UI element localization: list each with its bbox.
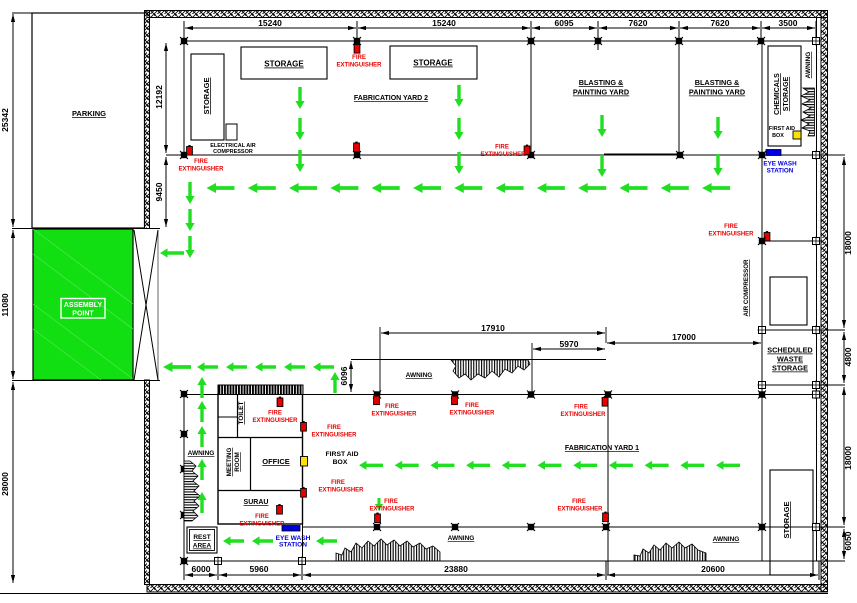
svg-text:FIRST AID: FIRST AID bbox=[326, 451, 359, 458]
svg-text:PAINTING YARD: PAINTING YARD bbox=[573, 88, 629, 97]
svg-text:FIRE: FIRE bbox=[331, 480, 345, 486]
svg-text:23880: 23880 bbox=[444, 564, 468, 574]
svg-text:17910: 17910 bbox=[481, 323, 505, 333]
svg-text:AWNING: AWNING bbox=[805, 52, 812, 79]
svg-text:FIRST AID: FIRST AID bbox=[769, 126, 795, 132]
svg-text:20600: 20600 bbox=[701, 564, 725, 574]
svg-text:STORAGE: STORAGE bbox=[202, 78, 211, 115]
svg-text:TOILET: TOILET bbox=[238, 401, 245, 424]
svg-text:AWNING: AWNING bbox=[713, 536, 740, 543]
svg-text:AREA: AREA bbox=[193, 543, 212, 550]
svg-text:17000: 17000 bbox=[672, 332, 696, 342]
svg-text:ROOM: ROOM bbox=[234, 452, 241, 472]
svg-text:EXTINGUISHER: EXTINGUISHER bbox=[560, 412, 606, 418]
svg-text:REST: REST bbox=[193, 534, 210, 541]
svg-text:AIR COMPRESSOR: AIR COMPRESSOR bbox=[743, 259, 750, 317]
svg-text:EXTINGUISHER: EXTINGUISHER bbox=[311, 433, 357, 439]
svg-text:6050: 6050 bbox=[843, 531, 853, 550]
svg-text:STORAGE: STORAGE bbox=[264, 60, 304, 69]
svg-text:FIRE: FIRE bbox=[465, 403, 479, 409]
svg-text:AWNING: AWNING bbox=[448, 535, 475, 542]
svg-text:EXTINGUISHER: EXTINGUISHER bbox=[318, 488, 364, 494]
svg-text:FIRE: FIRE bbox=[724, 224, 738, 230]
svg-text:FIRE: FIRE bbox=[194, 159, 208, 165]
svg-text:CHEMICALS: CHEMICALS bbox=[774, 73, 781, 115]
svg-text:STORAGE: STORAGE bbox=[772, 364, 808, 373]
svg-text:4800: 4800 bbox=[843, 347, 853, 366]
svg-text:FIRE: FIRE bbox=[384, 499, 398, 505]
svg-text:EXTINGUISHER: EXTINGUISHER bbox=[708, 232, 754, 238]
svg-text:11080: 11080 bbox=[0, 293, 10, 316]
svg-text:STATION: STATION bbox=[767, 168, 794, 175]
svg-text:9450: 9450 bbox=[154, 182, 164, 201]
svg-text:EXTINGUISHER: EXTINGUISHER bbox=[369, 507, 415, 513]
svg-text:AWNING: AWNING bbox=[406, 372, 433, 379]
svg-text:7620: 7620 bbox=[629, 18, 648, 28]
svg-text:6095: 6095 bbox=[555, 18, 574, 28]
svg-text:18000: 18000 bbox=[843, 231, 853, 255]
svg-text:STORAGE: STORAGE bbox=[783, 76, 790, 111]
svg-text:18000: 18000 bbox=[843, 446, 853, 470]
svg-text:EXTINGUISHER: EXTINGUISHER bbox=[336, 63, 382, 69]
svg-text:EXTINGUISHER: EXTINGUISHER bbox=[252, 418, 298, 424]
svg-text:12192: 12192 bbox=[154, 85, 164, 109]
svg-text:PARKING: PARKING bbox=[72, 109, 106, 118]
svg-text:FABRICATION YARD 2: FABRICATION YARD 2 bbox=[354, 95, 428, 102]
svg-text:3500: 3500 bbox=[779, 18, 798, 28]
svg-text:BLASTING &: BLASTING & bbox=[579, 78, 624, 87]
svg-text:OFFICE: OFFICE bbox=[262, 457, 290, 466]
svg-text:EYE WASH: EYE WASH bbox=[763, 161, 797, 168]
svg-text:EXTINGUISHER: EXTINGUISHER bbox=[178, 167, 224, 173]
svg-text:SCHEDULED: SCHEDULED bbox=[767, 346, 812, 355]
svg-text:MEETING: MEETING bbox=[226, 448, 233, 477]
svg-text:PAINTING YARD: PAINTING YARD bbox=[689, 88, 745, 97]
svg-text:BOX: BOX bbox=[772, 133, 784, 139]
svg-text:28000: 28000 bbox=[0, 472, 10, 496]
svg-text:FABRICATION YARD 1: FABRICATION YARD 1 bbox=[565, 445, 639, 452]
svg-text:AWNING: AWNING bbox=[188, 450, 215, 457]
svg-text:EXTINGUISHER: EXTINGUISHER bbox=[557, 507, 603, 513]
svg-text:EXTINGUISHER: EXTINGUISHER bbox=[239, 522, 285, 528]
svg-text:COMPRESSOR: COMPRESSOR bbox=[213, 149, 253, 155]
svg-text:FIRE: FIRE bbox=[495, 145, 509, 151]
svg-text:STORAGE: STORAGE bbox=[413, 59, 453, 68]
svg-text:25342: 25342 bbox=[0, 108, 10, 132]
svg-text:FIRE: FIRE bbox=[327, 425, 341, 431]
svg-text:15240: 15240 bbox=[258, 18, 282, 28]
svg-text:WASTE: WASTE bbox=[777, 355, 803, 364]
svg-text:FIRE: FIRE bbox=[352, 55, 366, 61]
svg-text:FIRE: FIRE bbox=[572, 499, 586, 505]
svg-text:FIRE: FIRE bbox=[574, 405, 588, 411]
svg-text:ASSEMBLY: ASSEMBLY bbox=[64, 302, 103, 309]
svg-text:POINT: POINT bbox=[72, 311, 94, 318]
svg-text:EXTINGUISHER: EXTINGUISHER bbox=[449, 411, 495, 417]
svg-text:EXTINGUISHER: EXTINGUISHER bbox=[371, 412, 417, 418]
svg-text:15240: 15240 bbox=[432, 18, 456, 28]
svg-text:SURAU: SURAU bbox=[244, 499, 269, 506]
svg-text:BLASTING &: BLASTING & bbox=[695, 78, 740, 87]
svg-text:STORAGE: STORAGE bbox=[782, 502, 791, 539]
svg-text:6096: 6096 bbox=[339, 366, 349, 385]
svg-text:FIRE: FIRE bbox=[268, 411, 282, 417]
svg-text:EXTINGUISHER: EXTINGUISHER bbox=[480, 152, 526, 158]
svg-text:6000: 6000 bbox=[192, 564, 211, 574]
svg-text:BOX: BOX bbox=[333, 459, 348, 466]
svg-text:5970: 5970 bbox=[560, 339, 579, 349]
svg-text:FIRE: FIRE bbox=[255, 514, 269, 520]
svg-text:7620: 7620 bbox=[711, 18, 730, 28]
svg-text:5960: 5960 bbox=[250, 564, 269, 574]
svg-text:FIRE: FIRE bbox=[385, 404, 399, 410]
